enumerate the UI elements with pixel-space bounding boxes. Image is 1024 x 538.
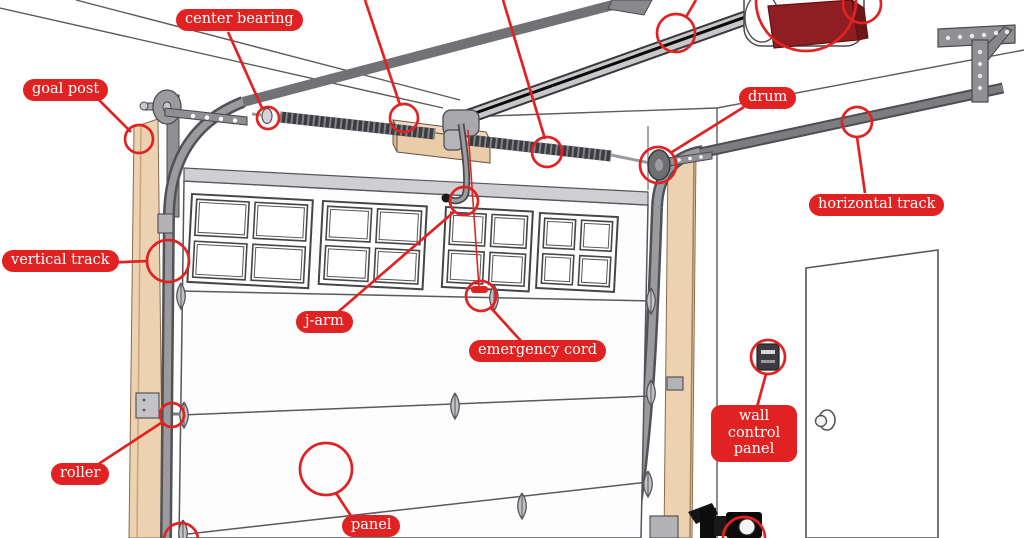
label-center-bearing: center bearing: [176, 9, 303, 31]
window-group: [319, 201, 427, 289]
label-goal-post: goal post: [23, 79, 108, 101]
leader-line: [686, 0, 696, 17]
diagram-illustration: [0, 0, 1024, 538]
cord-handle: [471, 286, 488, 293]
service-door: [806, 250, 938, 538]
center-bearing-part: [262, 109, 272, 124]
window-group: [442, 207, 533, 291]
wall-control-panel-device: [757, 344, 779, 370]
leader-line: [365, 0, 400, 105]
leader-line: [757, 374, 766, 407]
track-bottom-plate: [650, 516, 678, 538]
label-drum: drum: [739, 87, 796, 109]
window-group: [187, 194, 312, 288]
label-j-arm: j-arm: [296, 311, 353, 333]
label-roller: roller: [51, 463, 109, 485]
leader-line: [97, 98, 131, 132]
label-vertical-track: vertical track: [2, 250, 119, 272]
leader-line: [857, 137, 865, 193]
right-track-bracket: [667, 377, 683, 390]
label-wall-control-panel: wall control panel: [711, 405, 797, 462]
label-horizontal-track: horizontal track: [809, 194, 944, 216]
label-panel: panel: [342, 515, 400, 537]
left-post-plate: [136, 393, 159, 418]
window-group: [536, 213, 618, 292]
garage-door-parts-diagram: goal post center bearing drum horizontal…: [0, 0, 1024, 538]
left-track-bracket: [158, 214, 173, 233]
label-emergency-cord: emergency cord: [469, 340, 606, 362]
